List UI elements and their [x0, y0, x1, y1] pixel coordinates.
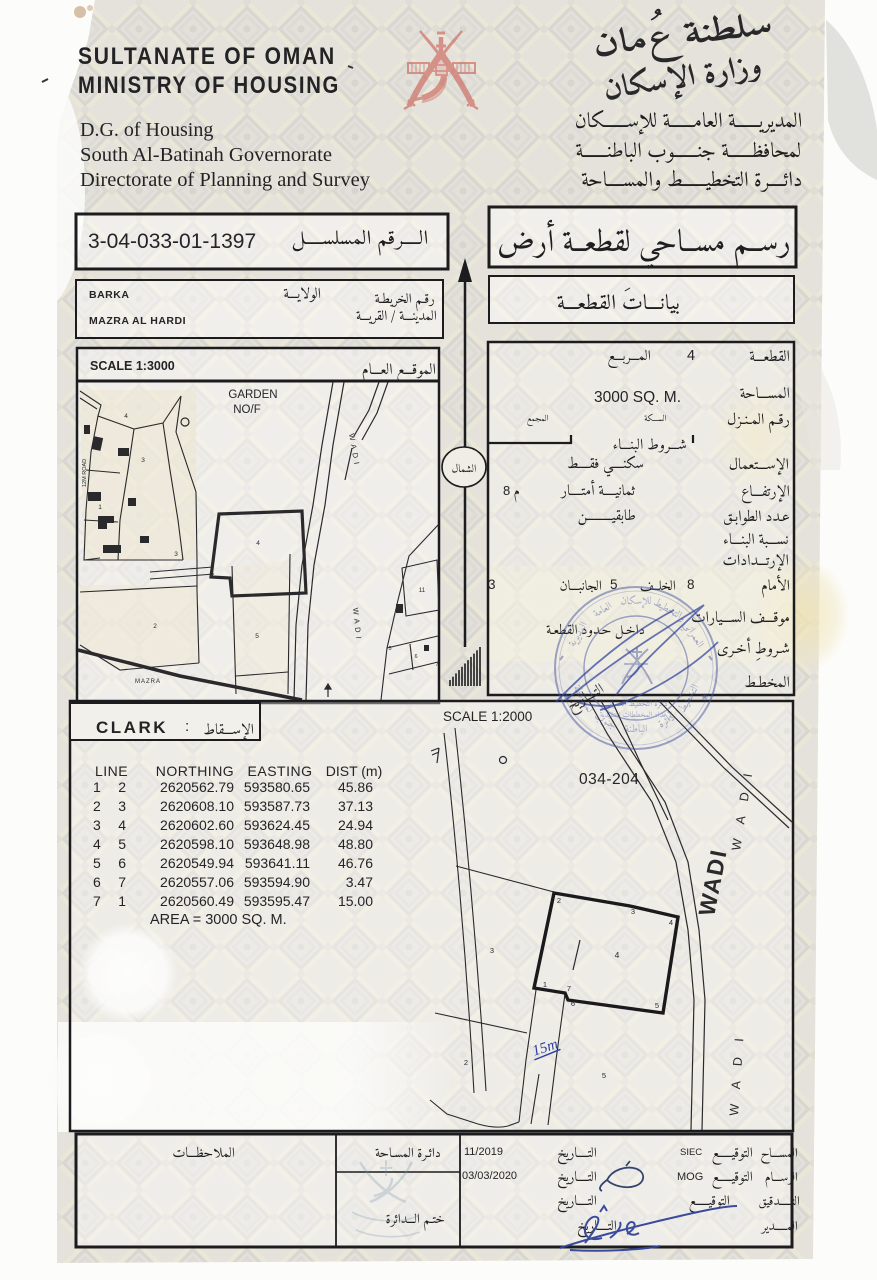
svg-text:SCALE 1:2000: SCALE 1:2000 [443, 709, 532, 724]
svg-text:LINE: LINE [95, 763, 128, 779]
svg-text:37.13: 37.13 [338, 798, 373, 814]
svg-text:D.G. of Housing: D.G. of Housing [80, 119, 213, 141]
svg-text:SIEC: SIEC [680, 1147, 702, 1158]
svg-text:1: 1 [118, 893, 126, 909]
svg-text:6: 6 [93, 874, 101, 890]
svg-text:593648.98: 593648.98 [244, 836, 310, 852]
svg-text:4: 4 [118, 817, 126, 833]
svg-text:5: 5 [255, 633, 259, 640]
svg-text:2620602.60: 2620602.60 [160, 817, 234, 833]
svg-text:7: 7 [118, 874, 126, 890]
svg-text:4: 4 [93, 836, 101, 852]
svg-text:12M ROAD: 12M ROAD [82, 459, 88, 487]
svg-text:Directorate of Planning and Su: Directorate of Planning and Survey [80, 169, 370, 191]
svg-text:593587.73: 593587.73 [244, 798, 310, 814]
svg-text:11: 11 [419, 588, 426, 594]
svg-text:NO/F: NO/F [233, 404, 260, 416]
svg-text:593641.11: 593641.11 [245, 855, 310, 871]
svg-text:3.47: 3.47 [346, 874, 373, 890]
svg-text:2: 2 [464, 1058, 468, 1067]
svg-text:MOG: MOG [677, 1171, 703, 1183]
svg-text:5: 5 [388, 646, 391, 652]
svg-text:MAZRA AL HARDI: MAZRA AL HARDI [89, 315, 186, 327]
svg-text:3-04-033-01-1397: 3-04-033-01-1397 [88, 230, 256, 253]
svg-text:MAZRA: MAZRA [135, 679, 161, 685]
svg-text:AREA = 3000 SQ. M.: AREA = 3000 SQ. M. [150, 912, 287, 928]
svg-text:1: 1 [98, 504, 102, 511]
svg-text:4: 4 [124, 413, 128, 420]
svg-text:3: 3 [174, 551, 178, 558]
svg-text:4: 4 [256, 540, 260, 547]
svg-text:BARKA: BARKA [89, 289, 129, 301]
svg-text:★: ★ [700, 692, 709, 703]
svg-text:2620598.10: 2620598.10 [160, 836, 234, 852]
svg-text:3000 SQ. M.: 3000 SQ. M. [594, 389, 681, 406]
svg-text:2620549.94: 2620549.94 [160, 855, 234, 871]
svg-text:15.00: 15.00 [338, 893, 373, 909]
svg-text:7: 7 [567, 984, 571, 993]
svg-text:8: 8 [687, 577, 695, 592]
svg-text:SULTANATE OF OMAN: SULTANATE OF OMAN [78, 43, 336, 70]
svg-text:NORTHING: NORTHING [156, 763, 234, 779]
svg-text:6: 6 [414, 654, 417, 660]
svg-text:5: 5 [93, 855, 101, 871]
svg-text:6: 6 [571, 999, 575, 1008]
svg-text:24.94: 24.94 [338, 817, 373, 833]
svg-text:3: 3 [490, 946, 494, 955]
svg-text:034-204: 034-204 [579, 771, 639, 788]
svg-text:2: 2 [118, 779, 126, 795]
svg-text:5: 5 [118, 836, 126, 852]
svg-text:7: 7 [435, 662, 438, 668]
svg-text:6: 6 [118, 855, 126, 871]
svg-text:DIST (m): DIST (m) [326, 763, 383, 779]
svg-text:48.80: 48.80 [338, 836, 373, 852]
svg-text:1: 1 [543, 980, 547, 989]
svg-text:EASTING: EASTING [248, 763, 313, 779]
svg-text:2: 2 [153, 623, 157, 630]
svg-text:3: 3 [118, 798, 126, 814]
svg-text:2: 2 [557, 896, 561, 905]
svg-text:SCALE 1:3000: SCALE 1:3000 [90, 359, 175, 373]
svg-text:2620562.79: 2620562.79 [160, 779, 234, 795]
svg-text:11/2019: 11/2019 [464, 1146, 503, 1158]
svg-text:2620608.10: 2620608.10 [160, 798, 234, 814]
svg-text:CLARK: CLARK [96, 718, 168, 737]
svg-text:593624.45: 593624.45 [244, 817, 310, 833]
svg-text:5: 5 [602, 1071, 606, 1080]
svg-text:MINISTRY OF HOUSING: MINISTRY OF HOUSING [78, 72, 340, 99]
svg-text:593595.47: 593595.47 [244, 893, 310, 909]
svg-text:4: 4 [669, 918, 673, 927]
svg-text:2: 2 [93, 798, 101, 814]
svg-text:South Al-Batinah Governorate: South Al-Batinah Governorate [80, 144, 332, 166]
svg-text:46.76: 46.76 [338, 855, 373, 871]
svg-text:1: 1 [93, 779, 101, 795]
svg-text:8: 8 [503, 483, 510, 498]
svg-text:5: 5 [655, 1001, 659, 1010]
svg-text:4: 4 [615, 950, 620, 960]
svg-text:3: 3 [93, 817, 101, 833]
svg-text:GARDEN: GARDEN [228, 389, 277, 401]
svg-text:4: 4 [687, 348, 695, 364]
svg-text:7: 7 [93, 893, 101, 909]
svg-text:3: 3 [141, 457, 145, 464]
svg-text:2620560.49: 2620560.49 [160, 893, 234, 909]
svg-text:45.86: 45.86 [338, 779, 373, 795]
svg-text:3: 3 [488, 577, 496, 592]
svg-text:593594.90: 593594.90 [244, 874, 310, 890]
svg-text:593580.65: 593580.65 [244, 779, 310, 795]
svg-text:03/03/2020: 03/03/2020 [462, 1170, 517, 1182]
svg-text:2620557.06: 2620557.06 [160, 874, 234, 890]
svg-text:3: 3 [631, 907, 635, 916]
svg-text::: : [185, 718, 189, 735]
